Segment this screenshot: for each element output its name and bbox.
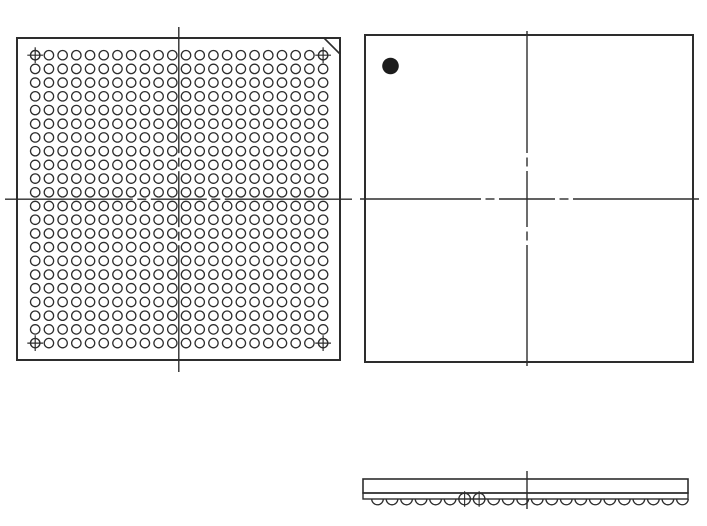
solder-ball [168, 78, 177, 87]
solder-ball [305, 256, 314, 265]
solder-ball [236, 51, 245, 60]
side-solder-ball [430, 499, 442, 505]
solder-ball [58, 64, 67, 73]
solder-ball [209, 64, 218, 73]
solder-ball [154, 297, 163, 306]
side-solder-ball [401, 499, 413, 505]
solder-ball [181, 325, 190, 334]
solder-ball [209, 325, 218, 334]
solder-ball [58, 92, 67, 101]
solder-ball [126, 270, 135, 279]
solder-ball [195, 174, 204, 183]
solder-ball [154, 311, 163, 320]
solder-ball [222, 174, 231, 183]
solder-ball [72, 242, 81, 251]
solder-ball [250, 119, 259, 128]
solder-ball [72, 105, 81, 114]
solder-ball [31, 119, 40, 128]
solder-ball [236, 325, 245, 334]
package-substrate [363, 493, 688, 499]
solder-ball [305, 105, 314, 114]
solder-ball [168, 188, 177, 197]
solder-ball [222, 201, 231, 210]
solder-ball [113, 105, 122, 114]
solder-ball [126, 338, 135, 347]
solder-ball [31, 105, 40, 114]
solder-ball [154, 325, 163, 334]
solder-ball [209, 51, 218, 60]
solder-ball [264, 242, 273, 251]
solder-ball [126, 297, 135, 306]
solder-ball [291, 256, 300, 265]
solder-ball [209, 92, 218, 101]
solder-ball [140, 146, 149, 155]
solder-ball [85, 297, 94, 306]
solder-ball [85, 256, 94, 265]
solder-ball [168, 105, 177, 114]
solder-ball [236, 64, 245, 73]
solder-ball [44, 146, 53, 155]
solder-ball [85, 325, 94, 334]
solder-ball [264, 92, 273, 101]
solder-ball [140, 51, 149, 60]
solder-ball [209, 229, 218, 238]
solder-ball [209, 174, 218, 183]
solder-ball [209, 311, 218, 320]
solder-ball [209, 188, 218, 197]
solder-ball [126, 242, 135, 251]
solder-ball [222, 256, 231, 265]
solder-ball [264, 146, 273, 155]
solder-ball [58, 119, 67, 128]
solder-ball [99, 311, 108, 320]
solder-ball [85, 311, 94, 320]
solder-ball [264, 51, 273, 60]
solder-ball [126, 133, 135, 142]
solder-ball [318, 229, 327, 238]
solder-ball [44, 325, 53, 334]
solder-ball [126, 92, 135, 101]
solder-ball [236, 242, 245, 251]
solder-ball [126, 64, 135, 73]
solder-ball [195, 119, 204, 128]
solder-ball [318, 284, 327, 293]
side-solder-ball [546, 499, 558, 505]
solder-ball [168, 338, 177, 347]
solder-ball [58, 284, 67, 293]
solder-ball [99, 119, 108, 128]
solder-ball [277, 325, 286, 334]
solder-ball [58, 256, 67, 265]
solder-ball [291, 146, 300, 155]
solder-ball [264, 188, 273, 197]
side-solder-ball [488, 499, 500, 505]
solder-ball [154, 256, 163, 265]
solder-ball [277, 64, 286, 73]
solder-ball [291, 64, 300, 73]
solder-ball [264, 64, 273, 73]
solder-ball [181, 146, 190, 155]
solder-ball [291, 284, 300, 293]
solder-ball [209, 201, 218, 210]
solder-ball [113, 270, 122, 279]
solder-ball [85, 270, 94, 279]
solder-ball [222, 297, 231, 306]
solder-ball [126, 215, 135, 224]
solder-ball [154, 133, 163, 142]
solder-ball [72, 64, 81, 73]
solder-ball [140, 270, 149, 279]
solder-ball [305, 174, 314, 183]
solder-ball [44, 229, 53, 238]
solder-ball [264, 105, 273, 114]
solder-ball [195, 160, 204, 169]
solder-ball [168, 284, 177, 293]
solder-ball [168, 92, 177, 101]
solder-ball [99, 229, 108, 238]
solder-ball [154, 51, 163, 60]
solder-ball [264, 78, 273, 87]
solder-ball [222, 284, 231, 293]
solder-ball [195, 133, 204, 142]
solder-ball [99, 215, 108, 224]
solder-ball [209, 338, 218, 347]
solder-ball [154, 270, 163, 279]
solder-ball [31, 215, 40, 224]
solder-ball [222, 64, 231, 73]
solder-ball [126, 229, 135, 238]
solder-ball [126, 51, 135, 60]
solder-ball [113, 284, 122, 293]
side-solder-ball [444, 499, 456, 505]
solder-ball [168, 174, 177, 183]
solder-ball [222, 119, 231, 128]
solder-ball [85, 229, 94, 238]
solder-ball [154, 188, 163, 197]
solder-ball [140, 188, 149, 197]
solder-ball [140, 160, 149, 169]
solder-ball [126, 119, 135, 128]
package-body [363, 479, 688, 493]
solder-ball [222, 242, 231, 251]
solder-ball [222, 133, 231, 142]
solder-ball [236, 284, 245, 293]
solder-ball [72, 297, 81, 306]
solder-ball [154, 242, 163, 251]
solder-ball [31, 229, 40, 238]
solder-ball [236, 78, 245, 87]
solder-ball [181, 174, 190, 183]
solder-ball [58, 270, 67, 279]
solder-ball [99, 297, 108, 306]
solder-ball [85, 215, 94, 224]
solder-ball [250, 297, 259, 306]
solder-ball [222, 325, 231, 334]
solder-ball [31, 146, 40, 155]
solder-ball [31, 311, 40, 320]
solder-ball [72, 338, 81, 347]
solder-ball [44, 51, 53, 60]
solder-ball [277, 105, 286, 114]
solder-ball [305, 160, 314, 169]
solder-ball [291, 188, 300, 197]
side-solder-ball [575, 499, 587, 505]
solder-ball [181, 256, 190, 265]
solder-ball [181, 242, 190, 251]
solder-ball [222, 51, 231, 60]
solder-ball [58, 297, 67, 306]
side-solder-ball [662, 499, 674, 505]
solder-ball [72, 270, 81, 279]
solder-ball [264, 229, 273, 238]
solder-ball [99, 270, 108, 279]
solder-ball [250, 51, 259, 60]
solder-ball [195, 284, 204, 293]
solder-ball [236, 119, 245, 128]
solder-ball [250, 242, 259, 251]
solder-ball [222, 338, 231, 347]
solder-ball [209, 256, 218, 265]
solder-ball [222, 105, 231, 114]
solder-ball [305, 201, 314, 210]
solder-ball [277, 201, 286, 210]
solder-ball [126, 78, 135, 87]
solder-ball [291, 160, 300, 169]
solder-ball [209, 78, 218, 87]
solder-ball [85, 188, 94, 197]
solder-ball [250, 338, 259, 347]
solder-ball [209, 242, 218, 251]
solder-ball [264, 215, 273, 224]
solder-ball [318, 325, 327, 334]
solder-ball [195, 92, 204, 101]
solder-ball [113, 119, 122, 128]
solder-ball [305, 297, 314, 306]
solder-ball [72, 174, 81, 183]
solder-ball [277, 297, 286, 306]
solder-ball [236, 338, 245, 347]
solder-ball [58, 174, 67, 183]
solder-ball [277, 229, 286, 238]
solder-ball [99, 51, 108, 60]
solder-ball [99, 242, 108, 251]
solder-ball [181, 188, 190, 197]
solder-ball [85, 64, 94, 73]
solder-ball [318, 105, 327, 114]
solder-ball [99, 64, 108, 73]
solder-ball [291, 105, 300, 114]
solder-ball [58, 201, 67, 210]
solder-ball [31, 133, 40, 142]
solder-ball [318, 119, 327, 128]
solder-ball [99, 284, 108, 293]
solder-ball [72, 256, 81, 265]
side-solder-ball [633, 499, 645, 505]
solder-ball [250, 325, 259, 334]
solder-ball [195, 78, 204, 87]
side-solder-ball [648, 499, 660, 505]
solder-ball [113, 242, 122, 251]
solder-ball [72, 51, 81, 60]
corner-fiducial-ball [315, 47, 331, 63]
solder-ball [140, 133, 149, 142]
solder-ball [181, 284, 190, 293]
solder-ball [85, 51, 94, 60]
solder-ball [291, 270, 300, 279]
solder-ball [318, 160, 327, 169]
solder-ball [126, 256, 135, 265]
solder-ball [236, 256, 245, 265]
solder-ball [126, 311, 135, 320]
solder-ball [113, 92, 122, 101]
solder-ball [305, 78, 314, 87]
solder-ball [113, 78, 122, 87]
solder-ball [168, 215, 177, 224]
solder-ball [154, 105, 163, 114]
solder-ball [209, 119, 218, 128]
solder-ball [222, 270, 231, 279]
solder-ball [126, 325, 135, 334]
solder-ball [318, 201, 327, 210]
solder-ball [140, 201, 149, 210]
solder-ball [44, 270, 53, 279]
solder-ball [181, 64, 190, 73]
solder-ball [305, 325, 314, 334]
solder-ball [99, 325, 108, 334]
solder-ball [140, 215, 149, 224]
solder-ball [181, 105, 190, 114]
solder-ball [140, 174, 149, 183]
solder-ball [305, 92, 314, 101]
side-solder-ball [531, 499, 543, 505]
solder-ball [140, 338, 149, 347]
solder-ball [58, 242, 67, 251]
solder-ball [291, 78, 300, 87]
solder-ball [140, 284, 149, 293]
solder-ball [113, 64, 122, 73]
solder-ball [291, 215, 300, 224]
solder-ball [250, 229, 259, 238]
solder-ball [318, 242, 327, 251]
solder-ball [154, 338, 163, 347]
solder-ball [31, 270, 40, 279]
solder-ball [168, 160, 177, 169]
solder-ball [277, 160, 286, 169]
solder-ball [291, 201, 300, 210]
solder-ball [72, 229, 81, 238]
solder-ball [72, 119, 81, 128]
solder-ball [305, 311, 314, 320]
solder-ball [277, 146, 286, 155]
solder-ball [181, 92, 190, 101]
solder-ball [168, 229, 177, 238]
solder-ball [209, 215, 218, 224]
solder-ball [99, 92, 108, 101]
solder-ball [181, 119, 190, 128]
solder-ball [44, 174, 53, 183]
solder-ball [168, 256, 177, 265]
solder-ball [154, 201, 163, 210]
solder-ball [236, 146, 245, 155]
solder-ball [154, 174, 163, 183]
solder-ball [250, 188, 259, 197]
solder-ball [31, 325, 40, 334]
solder-ball [140, 297, 149, 306]
solder-ball [236, 160, 245, 169]
solder-ball [113, 297, 122, 306]
solder-ball [236, 201, 245, 210]
solder-ball [318, 78, 327, 87]
solder-ball [305, 146, 314, 155]
side-solder-ball [386, 499, 398, 505]
solder-ball [113, 133, 122, 142]
solder-ball [58, 160, 67, 169]
solder-ball [250, 78, 259, 87]
solder-ball [126, 160, 135, 169]
solder-ball [168, 201, 177, 210]
solder-ball [305, 119, 314, 128]
side-solder-ball [619, 499, 631, 505]
solder-ball [44, 160, 53, 169]
solder-ball [85, 201, 94, 210]
solder-ball [140, 64, 149, 73]
solder-ball [209, 270, 218, 279]
solder-ball [305, 51, 314, 60]
solder-ball [85, 146, 94, 155]
solder-ball [85, 284, 94, 293]
solder-ball [277, 270, 286, 279]
solder-ball [222, 215, 231, 224]
solder-ball [305, 188, 314, 197]
solder-ball [222, 146, 231, 155]
solder-ball [181, 201, 190, 210]
solder-ball [195, 51, 204, 60]
solder-ball [291, 297, 300, 306]
solder-ball [154, 284, 163, 293]
solder-ball [236, 188, 245, 197]
solder-ball [250, 311, 259, 320]
solder-ball [31, 92, 40, 101]
solder-ball [113, 215, 122, 224]
solder-ball [291, 242, 300, 251]
solder-ball [44, 133, 53, 142]
solder-ball [31, 297, 40, 306]
solder-ball [99, 201, 108, 210]
solder-ball [209, 284, 218, 293]
solder-ball [291, 92, 300, 101]
solder-ball [264, 270, 273, 279]
solder-ball [44, 105, 53, 114]
solder-ball [44, 119, 53, 128]
solder-ball [264, 174, 273, 183]
solder-ball [44, 78, 53, 87]
solder-ball [31, 201, 40, 210]
solder-ball [250, 256, 259, 265]
solder-ball [318, 133, 327, 142]
solder-ball [209, 146, 218, 155]
side-solder-ball [415, 499, 427, 505]
solder-ball [305, 270, 314, 279]
solder-ball [195, 325, 204, 334]
solder-ball [168, 270, 177, 279]
solder-ball [181, 51, 190, 60]
solder-ball [99, 133, 108, 142]
solder-ball [140, 105, 149, 114]
solder-ball [113, 188, 122, 197]
solder-ball [113, 338, 122, 347]
solder-ball [195, 311, 204, 320]
solder-ball [250, 160, 259, 169]
